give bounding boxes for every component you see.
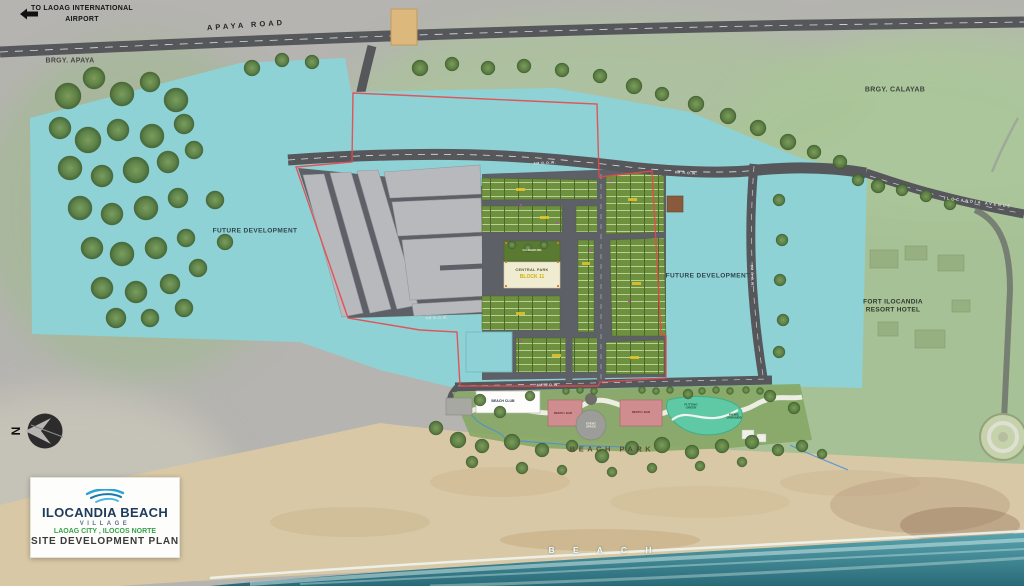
central-park-label: CENTRAL PARK bbox=[515, 268, 548, 272]
airport-note-line2: AIRPORT bbox=[31, 15, 133, 26]
title-block: ILOCANDIA BEACH VILLAGE LAOAG CITY , ILO… bbox=[30, 477, 180, 558]
airport-note-line1: TO LAOAG INTERNATIONAL bbox=[31, 4, 133, 15]
future-development-label-east: FUTURE DEVELOPMENT bbox=[666, 273, 751, 280]
fort-ilocandia-line2: RESORT HOTEL bbox=[863, 307, 923, 315]
event-space-label: EVENT SPACE bbox=[583, 423, 599, 430]
project-location: LAOAG CITY , ILOCOS NORTE bbox=[54, 528, 156, 535]
clubhouse-label: CLUBHOUSE bbox=[522, 248, 541, 252]
fort-ilocandia-line1: FORT ILOCANDIA bbox=[863, 299, 923, 307]
compass-north-label: N bbox=[9, 427, 23, 436]
site-development-plan: TO LAOAG INTERNATIONAL AIRPORT APAYA ROA… bbox=[0, 0, 1024, 586]
plan-title: SITE DEVELOPMENT PLAN bbox=[31, 536, 179, 547]
beach-label: B E A C H bbox=[548, 545, 659, 555]
fort-ilocandia-label: FORT ILOCANDIA RESORT HOTEL bbox=[863, 299, 923, 316]
beach-club-label: BEACH CLUB bbox=[491, 399, 514, 403]
airport-direction-note: TO LAOAG INTERNATIONAL AIRPORT bbox=[31, 4, 133, 26]
central-park-block-label: BLOCK 11 bbox=[520, 274, 544, 280]
road-row-label: 6M R.O.W. bbox=[750, 265, 755, 288]
putting-green-label: PUTTING GREEN bbox=[682, 404, 700, 411]
road-row-label: 6M R.O.W. bbox=[537, 383, 560, 387]
project-subtitle: VILLAGE bbox=[80, 521, 131, 527]
brgy-calayab-label: BRGY. CALAYAB bbox=[865, 87, 925, 94]
roundabout-feature bbox=[980, 414, 1024, 460]
resto-bar-label-west: RESTO / BAR bbox=[554, 411, 572, 415]
future-development-label-west: FUTURE DEVELOPMENT bbox=[213, 228, 298, 235]
project-title: ILOCANDIA BEACH bbox=[42, 505, 168, 520]
resto-bar-label-east: RESTO / BAR bbox=[632, 410, 650, 414]
road-row-label: 6M R.O.W. bbox=[426, 316, 449, 321]
residential-lots bbox=[466, 168, 683, 380]
brgy-apaya-label: BRGY. APAYA bbox=[45, 58, 94, 65]
picnic-grounds-label: PICNIC GROUNDS bbox=[723, 414, 745, 421]
waves-logo-icon bbox=[83, 489, 127, 504]
north-compass-icon bbox=[18, 406, 70, 458]
beach-park-label: BEACH PARK bbox=[570, 445, 654, 454]
